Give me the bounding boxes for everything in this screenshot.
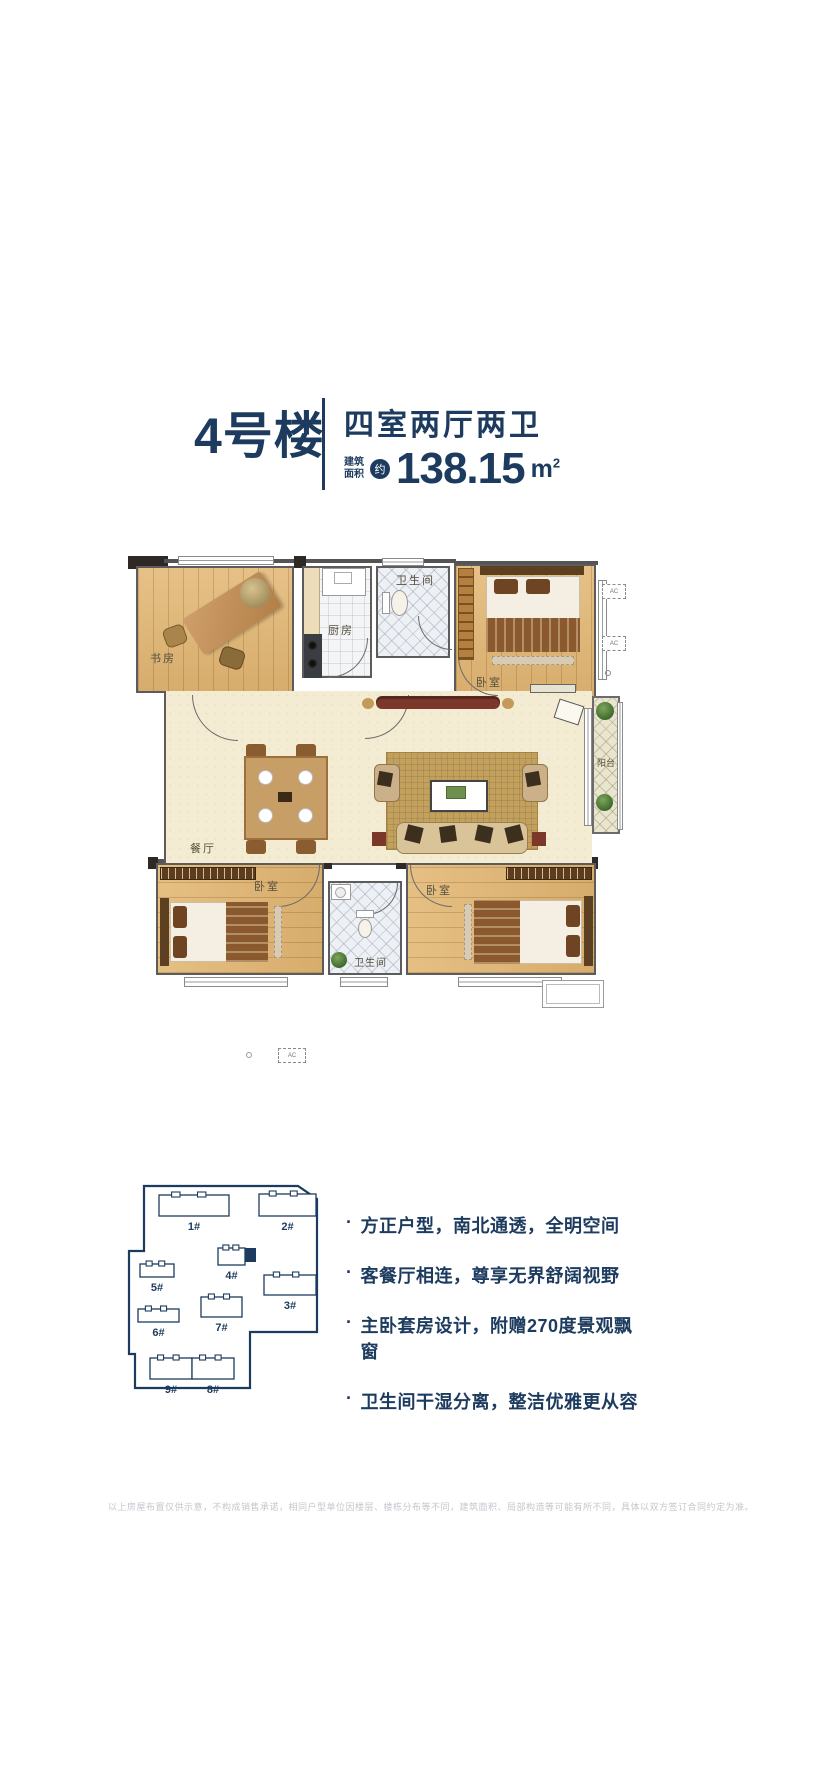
header-divider [322, 398, 325, 490]
plate [258, 808, 273, 823]
building-notch [293, 1272, 299, 1277]
site-building-5: 5# [140, 1261, 174, 1294]
floorplan-poster-page: 4号楼 四室两厅两卫 建筑 面积 约 138.15 m2 [0, 0, 828, 1792]
terrace-rail [542, 980, 604, 1008]
bullet-icon: · [346, 1388, 353, 1409]
site-building-1: 1# [159, 1192, 229, 1233]
tv-side-table [362, 698, 374, 709]
area-label-line2: 面积 [344, 469, 364, 481]
building-label: 3# [284, 1300, 296, 1312]
dining-chair [296, 840, 316, 854]
building-notch [146, 1261, 152, 1266]
bed-rug [464, 904, 472, 960]
side-table [372, 832, 386, 846]
building-label: 9# [165, 1384, 177, 1396]
window-balcony-inner [584, 708, 592, 826]
toilet-tank [356, 910, 374, 918]
site-building-7: 7# [201, 1294, 242, 1334]
feature-item-2: ·客餐厅相连，尊享无界舒阔视野 [346, 1262, 646, 1288]
room-label-bathroom-2: 卫生间 [354, 954, 387, 969]
window-study-top [178, 556, 274, 565]
building-notch [145, 1306, 151, 1311]
building-label: 4# [225, 1270, 237, 1282]
bay-window-bedroom2 [184, 977, 288, 987]
cushion [475, 825, 494, 844]
side-table [532, 832, 546, 846]
bullet-icon: · [346, 1262, 353, 1283]
area-label-line1: 建筑 [344, 457, 364, 469]
ac-platform: AC [602, 584, 626, 599]
drain-mark [605, 670, 611, 676]
bed-headboard [480, 566, 584, 575]
site-building-4: 4# [218, 1245, 245, 1282]
wardrobe [160, 867, 256, 880]
feature-item-1: ·方正户型，南北通透，全明空间 [346, 1212, 646, 1238]
building-notch [215, 1355, 221, 1360]
room-label-bedroom-1: 卧室 [476, 674, 502, 690]
plate [298, 770, 313, 785]
building-notch [159, 1261, 165, 1266]
room-label-bedroom-3: 卧室 [426, 882, 452, 898]
plant [331, 952, 347, 968]
toilet-bowl [391, 590, 408, 616]
pillow [566, 905, 580, 927]
site-building-9: 9# [150, 1355, 192, 1396]
sink-basin [334, 572, 352, 584]
room-label-study: 书房 [150, 650, 176, 666]
site-plan-map: 1#2#4#5#3#7#6#9#8# [112, 1182, 324, 1398]
area-label: 建筑 面积 [344, 457, 364, 481]
bullet-icon: · [346, 1312, 353, 1333]
building-notch [223, 1245, 229, 1250]
building-label: 7# [215, 1322, 227, 1334]
plant [596, 794, 613, 811]
pillow [494, 579, 518, 594]
wardrobe [506, 867, 592, 880]
window-bath1-top [382, 558, 424, 566]
bed-rug [274, 906, 282, 958]
toilet-tank [382, 592, 390, 614]
building-label: 8# [207, 1384, 219, 1396]
building-name: 4号楼 [194, 396, 325, 468]
tv-console [376, 696, 500, 709]
room-label-dining: 餐厅 [190, 840, 216, 856]
disclaimer-text: 以上房屋布置仅供示意，不构成销售承诺，相同户型单位因楼层、楼栋分布等不同，建筑面… [108, 1500, 722, 1513]
bed-rug [492, 656, 574, 665]
globe-chair [240, 578, 270, 608]
plate [298, 808, 313, 823]
area-row: 建筑 面积 约 138.15 m2 [344, 444, 560, 494]
bullet-icon: · [346, 1212, 353, 1233]
building-notch [273, 1272, 279, 1277]
building-label: 2# [281, 1221, 293, 1233]
highlighted-unit-marker [245, 1248, 256, 1262]
burner [307, 640, 318, 651]
dining-chair [246, 840, 266, 854]
building-notch [161, 1306, 167, 1311]
ac-platform: AC [278, 1048, 306, 1063]
building-label: 5# [151, 1282, 163, 1294]
drain-mark [246, 1052, 252, 1058]
approx-badge: 约 [370, 459, 390, 479]
building-notch [200, 1355, 206, 1360]
coffee-table-decor [446, 786, 466, 799]
bed-blanket [486, 618, 580, 652]
building-notch [198, 1192, 206, 1197]
feature-item-4: ·卫生间干湿分离，整洁优雅更从容 [346, 1388, 646, 1414]
building-notch [290, 1191, 297, 1196]
bench [530, 684, 576, 693]
cushion [377, 771, 393, 787]
floor-plan: AC AC [128, 556, 622, 1076]
building-notch [224, 1294, 230, 1299]
building-label: 6# [152, 1327, 164, 1339]
pillow [526, 579, 550, 594]
building-notch [208, 1294, 214, 1299]
site-building-2: 2# [259, 1191, 316, 1233]
feature-text: 客餐厅相连，尊享无界舒阔视野 [361, 1262, 620, 1288]
unit-type-title: 四室两厅两卫 [344, 400, 542, 444]
plant [596, 702, 614, 720]
basin-bowl [335, 887, 346, 898]
area-unit: m2 [531, 455, 560, 484]
area-unit-sup: 2 [553, 455, 560, 470]
bed-headboard [584, 896, 593, 966]
bed-headboard [160, 898, 169, 966]
window-bath2-bottom [340, 977, 388, 987]
area-value: 138.15 [396, 444, 525, 494]
burner [307, 658, 318, 669]
feature-text: 主卧套房设计，附赠270度景观飘窗 [361, 1312, 647, 1364]
room-label-balcony: 阳台 [594, 756, 618, 769]
site-building-3: 3# [264, 1272, 316, 1312]
room-label-bathroom-1: 卫生间 [396, 572, 435, 588]
feature-text: 卫生间干湿分离，整洁优雅更从容 [361, 1388, 639, 1414]
building-notch [233, 1245, 239, 1250]
plate [258, 770, 273, 785]
building-notch [173, 1355, 179, 1360]
building-notch [158, 1355, 164, 1360]
pillow [566, 935, 580, 957]
building-notch [269, 1191, 276, 1196]
room-label-kitchen: 厨房 [328, 622, 354, 638]
site-building-6: 6# [138, 1306, 179, 1339]
site-building-8: 8# [192, 1355, 234, 1396]
ac-platform: AC [602, 636, 626, 651]
feature-list: ·方正户型，南北通透，全明空间·客餐厅相连，尊享无界舒阔视野·主卧套房设计，附赠… [346, 1212, 646, 1438]
cushion [525, 771, 541, 787]
bed-blanket [474, 900, 520, 964]
tv-side-table [502, 698, 514, 709]
toilet-bowl [358, 919, 372, 938]
pillow [173, 906, 187, 928]
feature-item-3: ·主卧套房设计，附赠270度景观飘窗 [346, 1312, 646, 1364]
cushion [439, 825, 457, 843]
pillow [173, 936, 187, 958]
building-label: 1# [188, 1221, 200, 1233]
area-unit-m: m [531, 455, 553, 483]
table-centerpiece [278, 792, 292, 802]
wardrobe [458, 568, 474, 660]
room-label-bedroom-2: 卧室 [254, 878, 280, 894]
building-notch [172, 1192, 180, 1197]
feature-text: 方正户型，南北通透，全明空间 [361, 1212, 620, 1238]
bed-blanket [226, 902, 268, 962]
